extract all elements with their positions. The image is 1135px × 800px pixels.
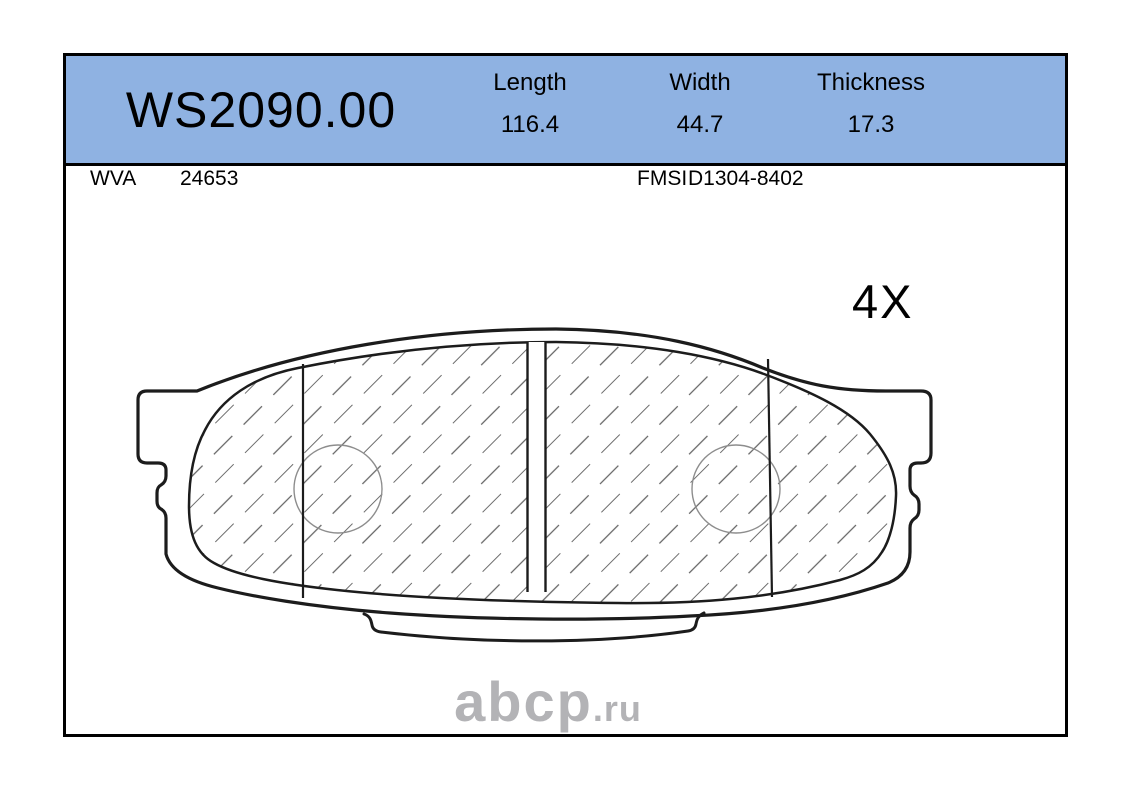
abcp-watermark-logo: abcp.ru: [454, 674, 642, 730]
watermark-tld: .ru: [593, 688, 642, 729]
center-slot: [527, 342, 546, 592]
watermark-name: abcp: [454, 670, 593, 733]
product-card-page: WS2090.00 Length 116.4 Width 44.7 Thickn…: [0, 0, 1135, 800]
quantity-label: 4X: [852, 274, 914, 329]
brake-pad-drawing: [66, 56, 1065, 734]
product-card-frame: WS2090.00 Length 116.4 Width 44.7 Thickn…: [63, 53, 1068, 737]
